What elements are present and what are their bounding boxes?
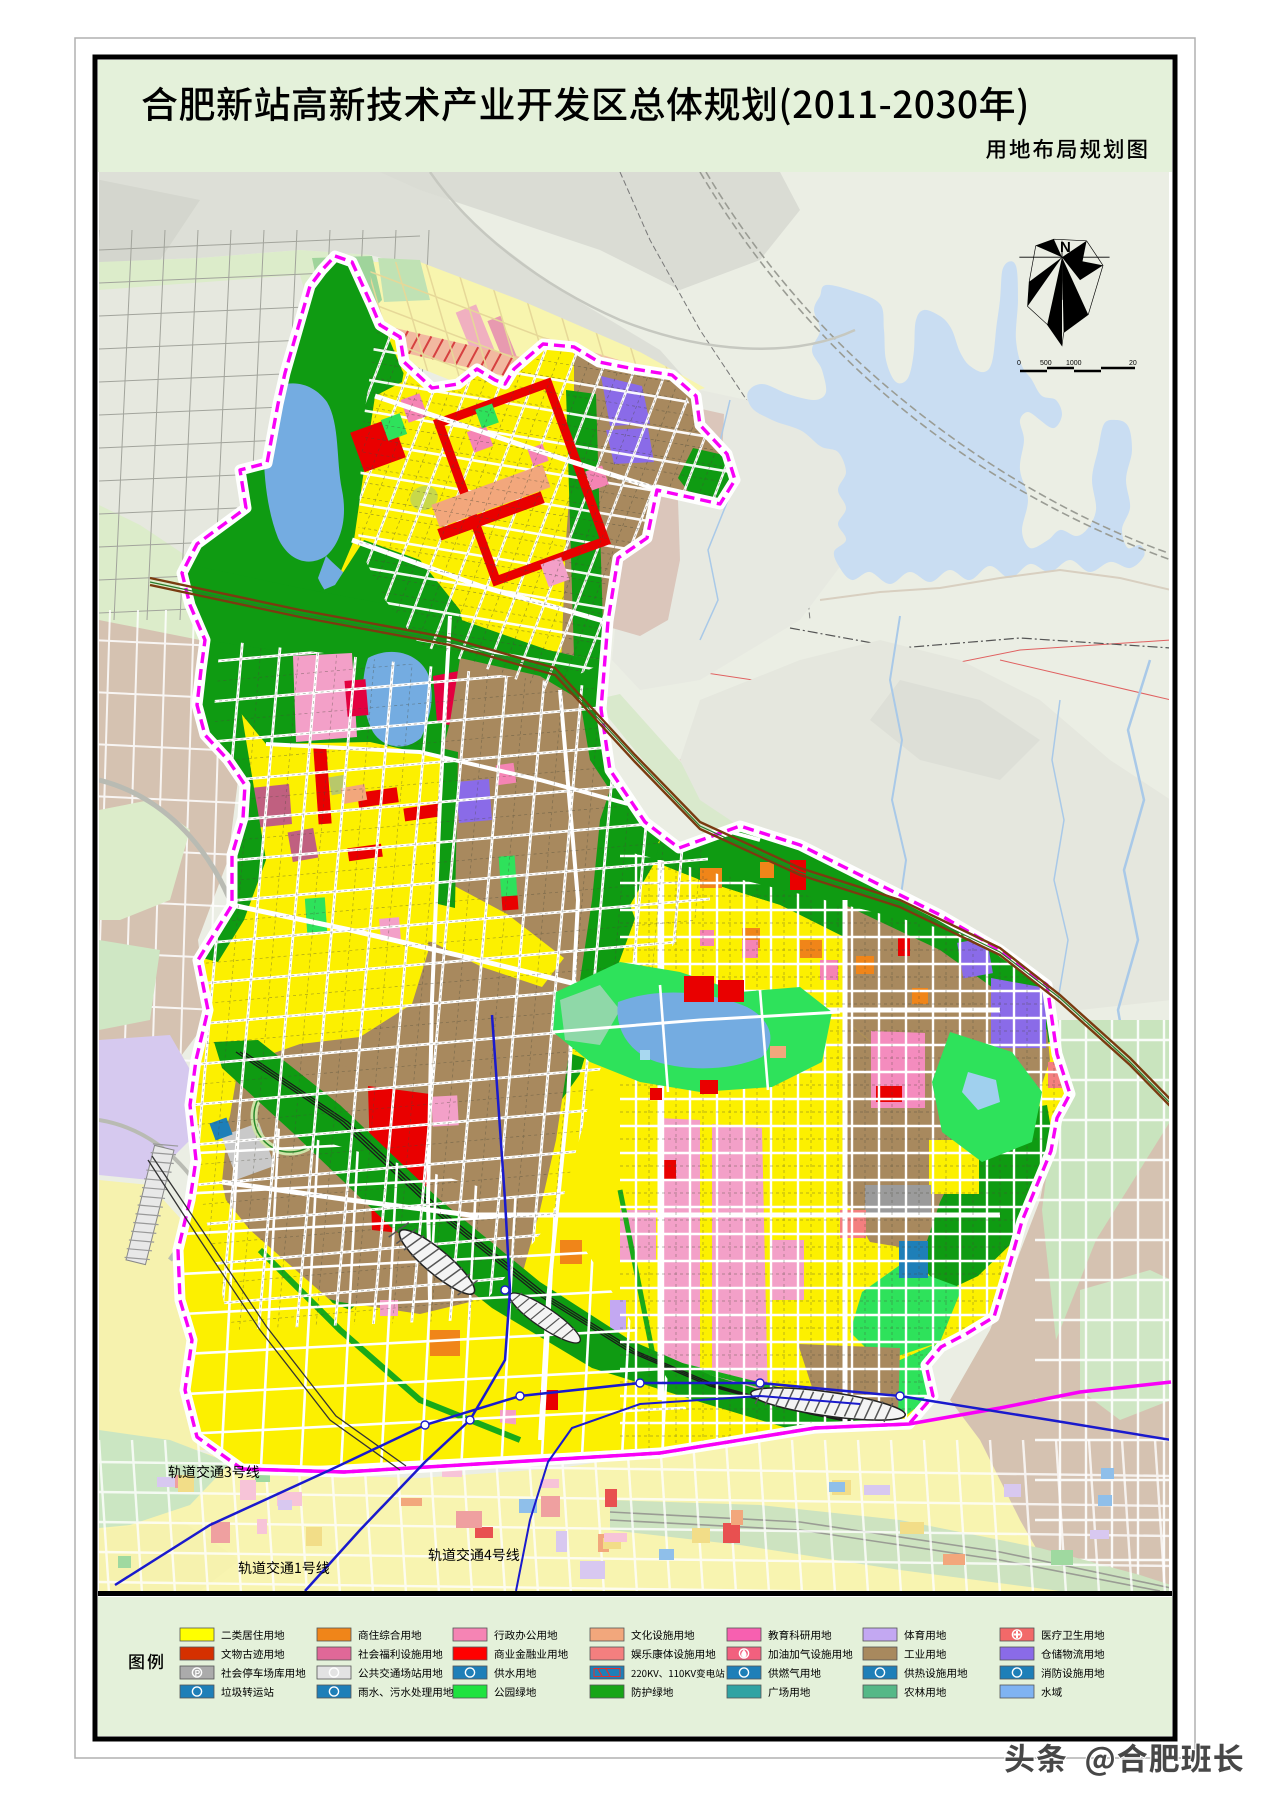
svg-text:0: 0: [1017, 360, 1021, 367]
svg-text:20: 20: [1129, 360, 1137, 367]
svg-text:1000: 1000: [1066, 360, 1082, 367]
svg-text:N: N: [1060, 239, 1071, 256]
svg-text:P: P: [195, 1669, 201, 1678]
svg-text:500: 500: [1040, 360, 1052, 367]
